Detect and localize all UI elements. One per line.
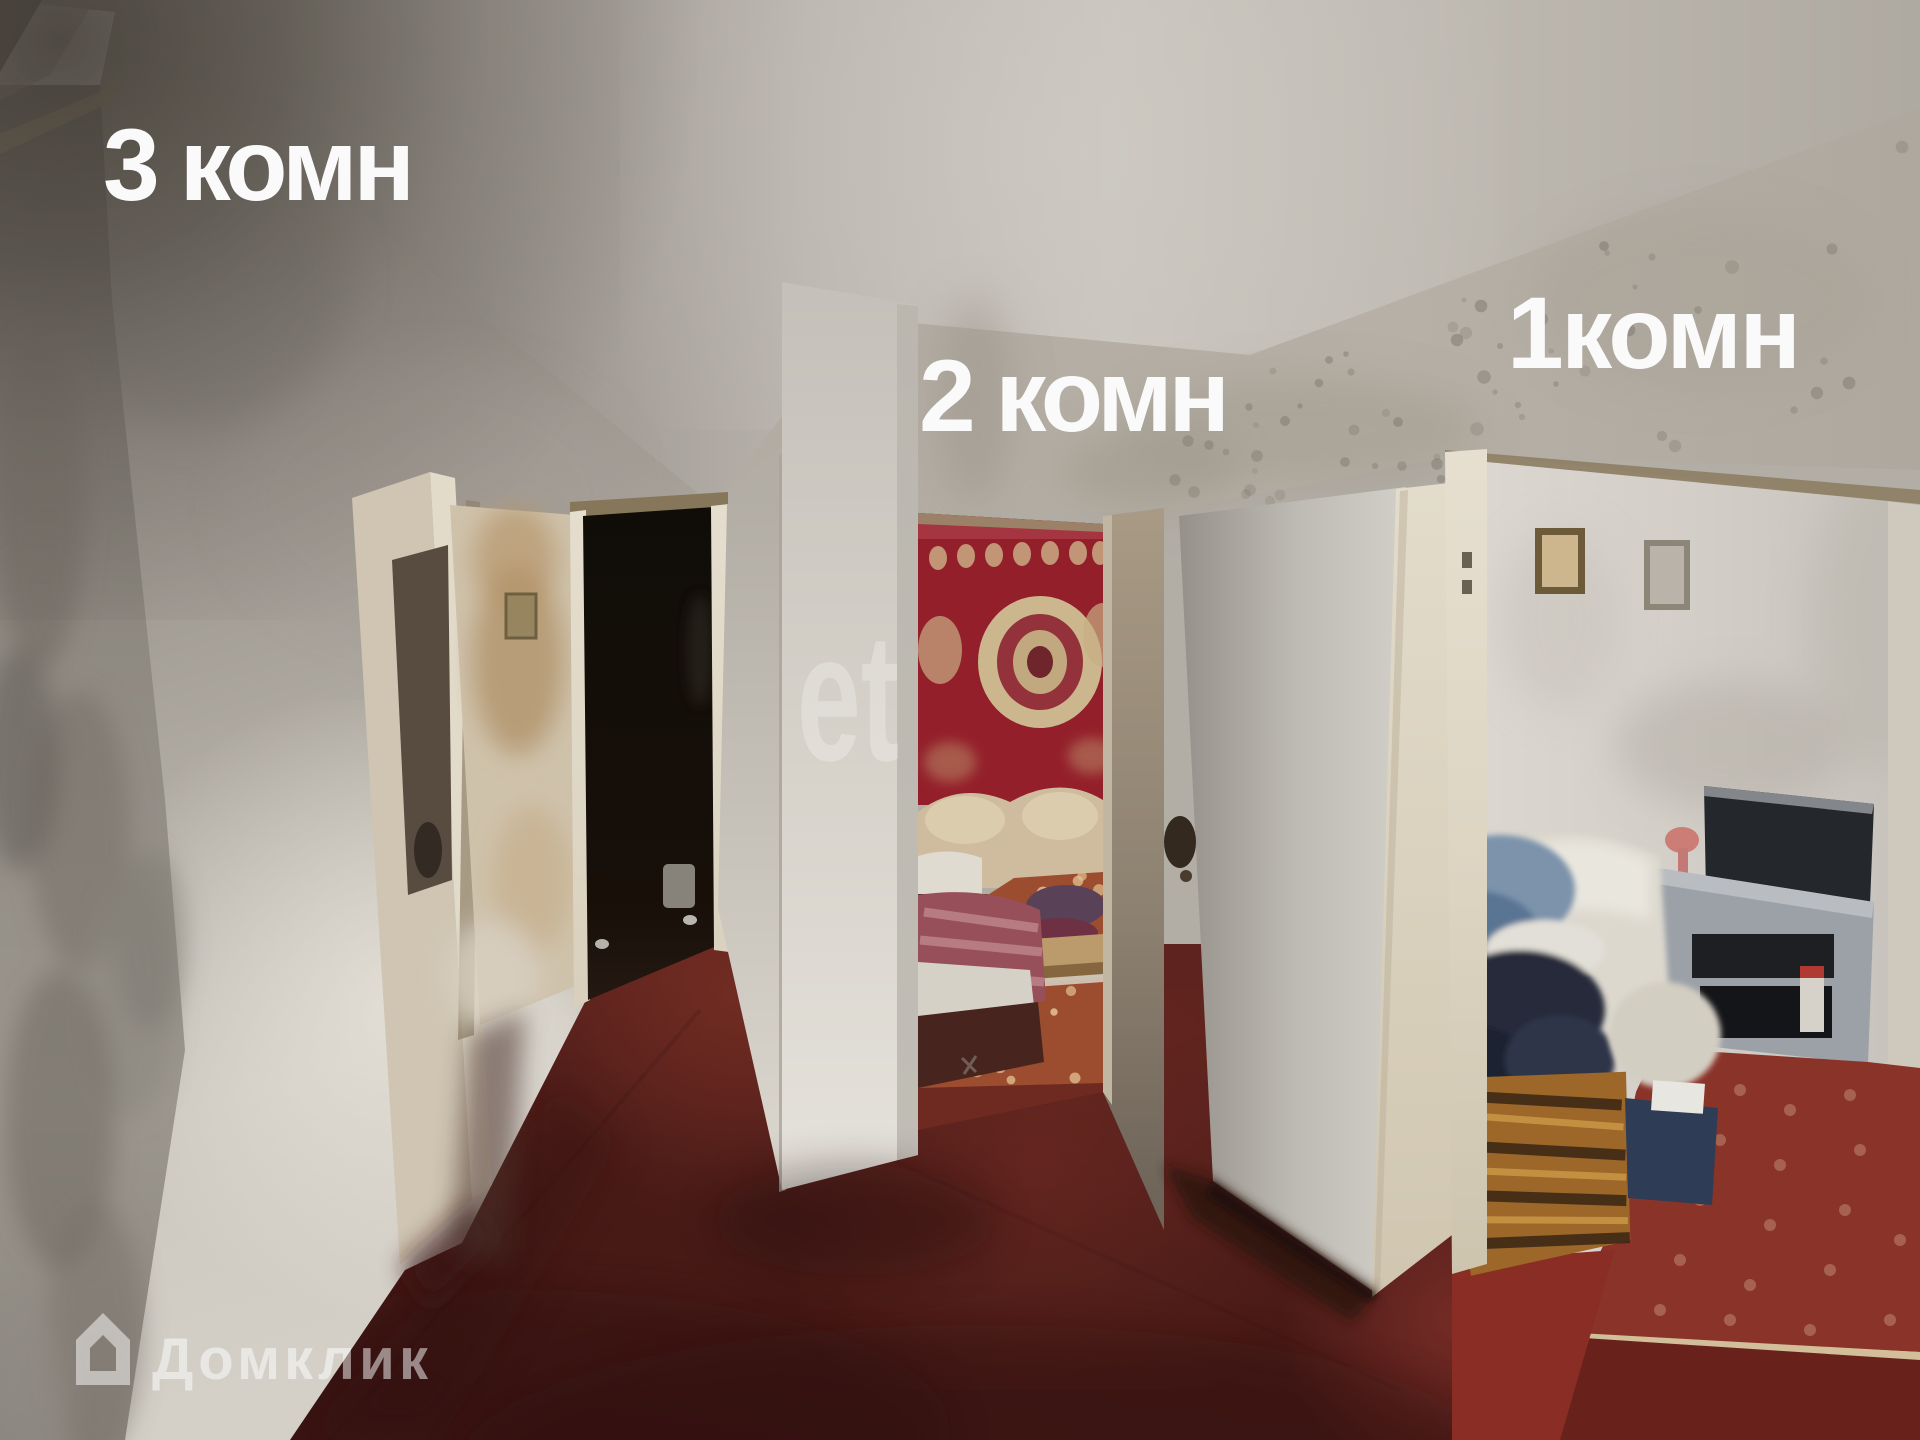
svg-text:3 комн: 3 комн: [103, 108, 415, 222]
svg-text:2 комн: 2 комн: [919, 339, 1230, 453]
svg-text:1комн: 1комн: [1507, 276, 1801, 390]
svg-text:Домклик: Домклик: [152, 1327, 429, 1392]
svg-text:et: et: [797, 596, 899, 799]
